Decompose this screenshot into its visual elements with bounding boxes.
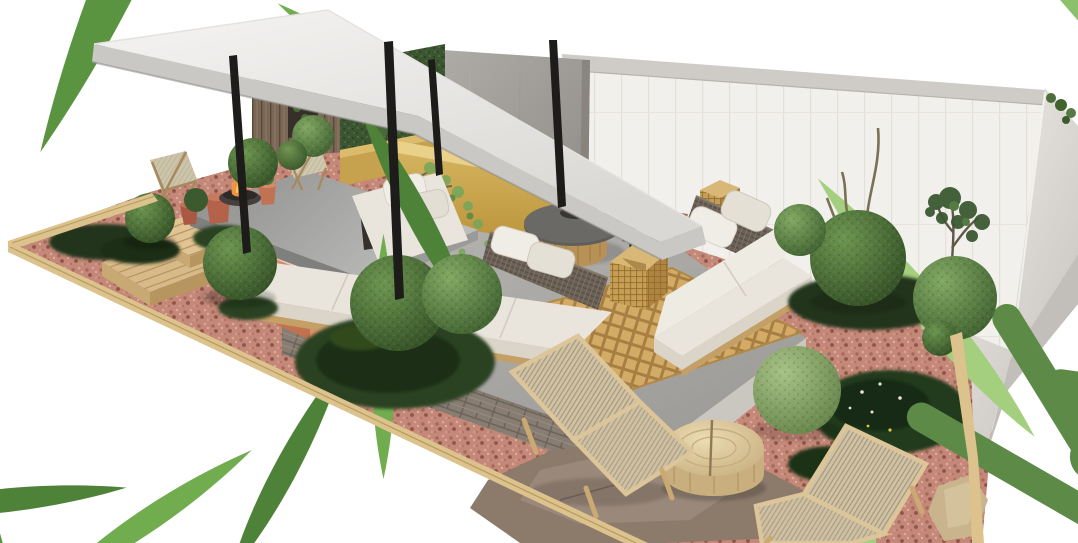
garden-render: 3D architectural render of a long narrow… [0,0,1078,543]
boxwood-sphere-light [753,346,841,441]
garden-render-svg [0,0,1078,543]
boxwood-sphere [203,226,277,308]
boxwood-sphere [422,254,502,334]
boxwood-sphere [774,204,826,256]
